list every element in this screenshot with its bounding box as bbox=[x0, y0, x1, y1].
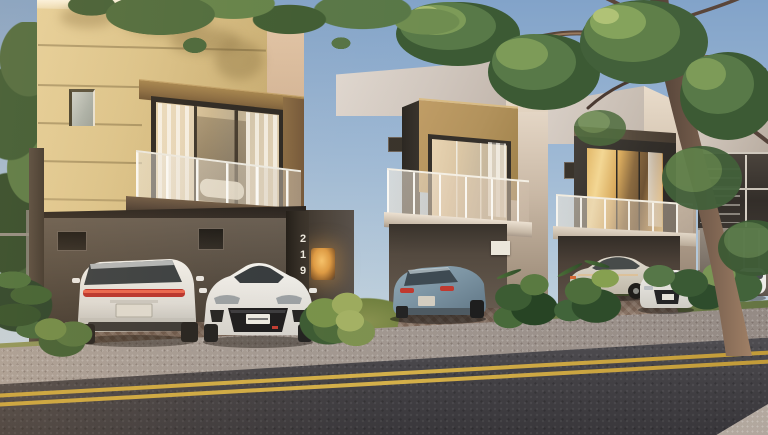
left-fence-rail bbox=[0, 233, 30, 236]
grass-tuft-mid bbox=[322, 300, 384, 352]
large-tree bbox=[396, 0, 768, 364]
house-1-small-window bbox=[69, 89, 95, 126]
overhanging-leaves bbox=[40, 0, 470, 54]
house-1-carport-vent bbox=[198, 228, 224, 250]
townhouse-street-render: 219 bbox=[0, 0, 768, 435]
hedge-left bbox=[24, 310, 100, 358]
